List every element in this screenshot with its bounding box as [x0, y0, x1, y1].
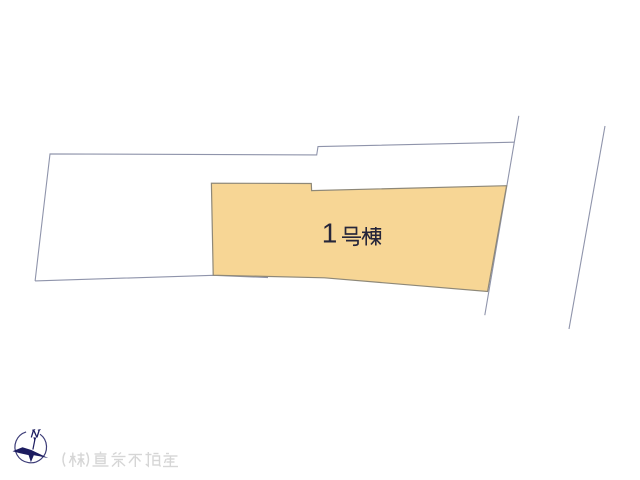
svg-text:1: 1 — [322, 218, 338, 249]
